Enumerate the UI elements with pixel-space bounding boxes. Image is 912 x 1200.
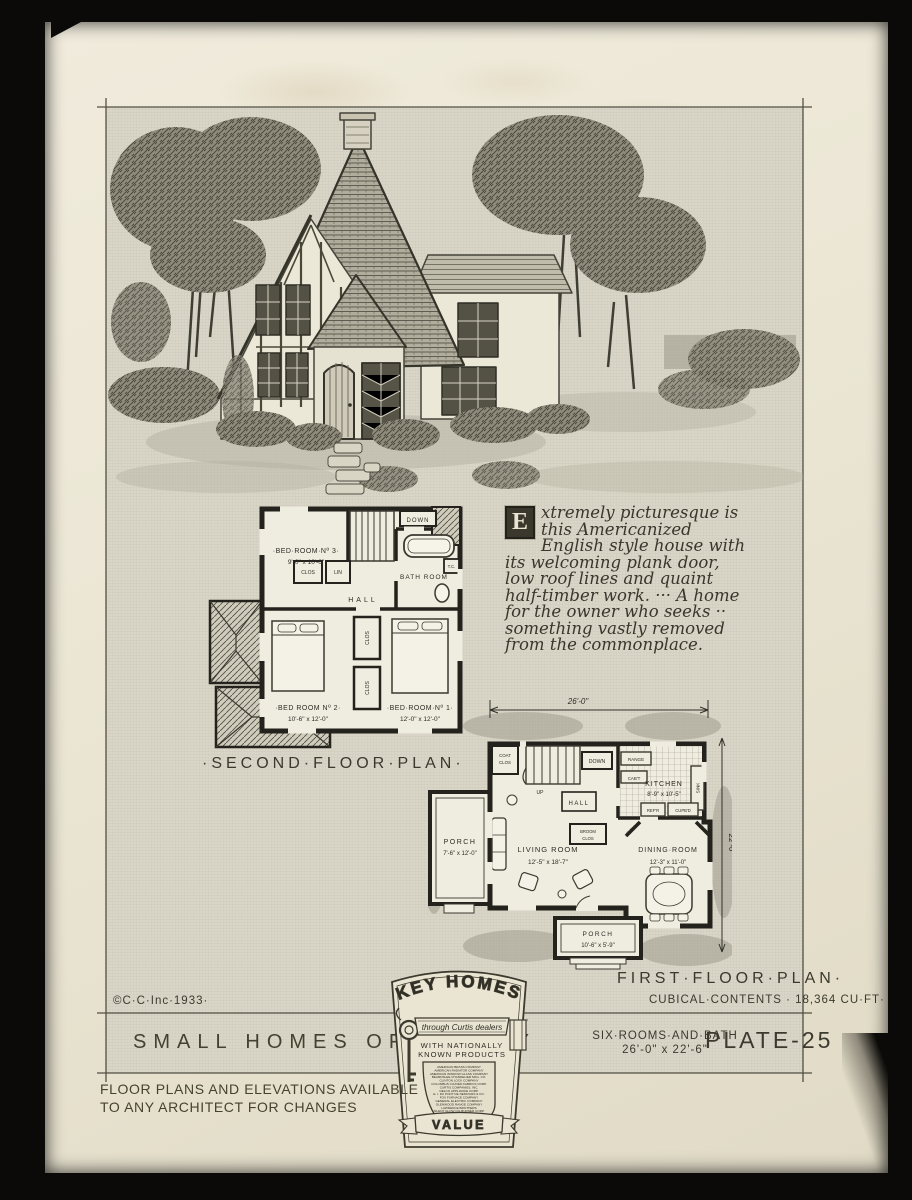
bed-bedroom1 [392,619,448,693]
up-label: UP [537,790,545,796]
first-floor-plan-title: FIRST·FLOOR·PLAN· [617,970,844,988]
side-porch-name: PORCH [444,839,477,846]
key-homes-emblem: KEY HOMES through Curtis dealers WITH NA… [383,956,535,1152]
linen-label: LIN [334,570,342,576]
range-label: RANGE [628,757,644,762]
cupbd-label: CUPB'D [675,808,690,813]
broom-label-1: BROOM [580,829,596,834]
down-label: DOWN [589,759,606,765]
drop-cap: E [505,506,535,539]
broom-closet-box [570,824,606,844]
side-porch-dims: 7'-6" x 12'-0" [443,851,477,857]
house-rendering-illustration [106,107,803,497]
book-page: DOWN T.C. BATH ROOM CLOS LIN HALL CLOS C… [45,22,888,1173]
bedroom2-dims: 10'-6" x 12'-0" [288,716,329,723]
living-dims: 12'-5" x 18'-7" [528,859,569,866]
hall-label: HALL [348,597,378,604]
closet-label-2: CLOS [365,681,371,695]
dining-dims: 12'-3" x 11'-0" [650,860,686,866]
emblem-tagline2: KNOWN PRODUCTS [418,1050,506,1059]
emblem-tagline1: WITH NATIONALLY [421,1041,504,1050]
hall-label: HALL [568,801,589,807]
doorway-ornament [508,1020,528,1050]
refr-label: REF'R [647,808,659,813]
plate-number: PLATE-25 [705,1027,833,1054]
closet-label: CLOS [301,570,315,576]
cabt-label: CAB'T [628,776,641,781]
second-floor-plan-title: ·SECOND·FLOOR·PLAN· [202,755,465,773]
desc-line: from the commonplace. [505,637,817,654]
bedroom2-name: ·BED ROOM Nº 2· [275,705,341,712]
broom-label-2: CLOS [582,836,594,841]
bed-bedroom2 [272,621,324,691]
stairs-down [350,511,394,561]
bedroom3-name: ·BED·ROOM·Nº 3· [273,548,339,555]
bedroom3-dims: 9'-0" x 10'-0" [288,559,325,566]
chimney [340,113,375,149]
dining-name: DINING·ROOM [638,847,698,854]
footer-line2: TO ANY ARCHITECT FOR CHANGES [100,1098,419,1116]
coat-label-2: CLOS [499,760,511,765]
dim-depth-label: 22'-6" [727,833,732,856]
down-label: DOWN [407,518,430,524]
kitchen-dims: 8'-9" x 10'-5" [647,792,681,798]
page-corner-curl [842,1033,888,1173]
copyright-note: ©C·C·Inc·1933· [113,995,208,1007]
front-porch-dims: 10'-6" x 5'-9" [581,943,615,949]
bathroom-label: BATH ROOM [400,574,448,581]
footer-line1: FLOOR PLANS AND ELEVATIONS AVAILABLE [100,1080,419,1098]
kitchen-name: KITCHEN [645,781,683,788]
first-floor-plan: 26'-0" 22'-6" PORCH 7'-6" x 12'-0" [428,688,732,970]
coat-label-1: COAT [499,753,511,758]
dealer-banner-text: through Curtis dealers [422,1023,503,1032]
living-name: LIVING ROOM [517,845,578,854]
footer-note: FLOOR PLANS AND ELEVATIONS AVAILABLE TO … [100,1080,419,1116]
sink-label: SINK [696,782,701,794]
dim-width-label: 26'-0" [567,697,590,706]
description-paragraph: E xtremely picturesque is this Americani… [505,505,817,654]
dining-table [646,867,692,921]
tc-label: T.C. [448,564,456,569]
right-wing-upper-window [458,303,498,357]
front-porch-name: PORCH [583,931,614,938]
porch-roof-left [210,601,262,683]
cubical-contents-note: CUBICAL·CONTENTS · 18,364 CU·FT· [649,994,885,1006]
closet-label-1: CLOS [365,631,371,645]
stairs-up [523,746,580,784]
right-wing-roof [412,255,572,293]
scanned-plate-photo: DOWN T.C. BATH ROOM CLOS LIN HALL CLOS C… [0,0,912,1200]
value-label: VALUE [432,1118,486,1132]
